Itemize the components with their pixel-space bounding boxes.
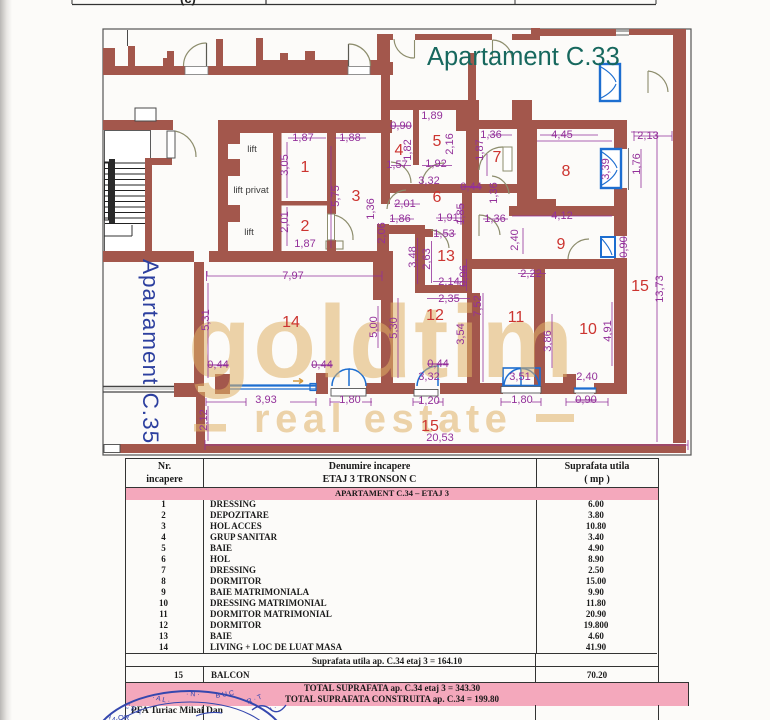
svg-text:5,75: 5,75 [330,185,342,206]
svg-text:3,51: 3,51 [509,371,530,383]
svg-text:5,31: 5,31 [200,309,212,330]
svg-text:1,36: 1,36 [488,182,500,203]
svg-text:1,87: 1,87 [474,139,486,160]
svg-text:3,32: 3,32 [418,175,439,187]
svg-text:13,73: 13,73 [654,275,666,303]
svg-text:5: 5 [433,133,442,150]
svg-text:1,87: 1,87 [294,238,315,250]
svg-text:2,35: 2,35 [438,293,459,305]
svg-text:3,39: 3,39 [600,158,612,179]
svg-text:2,22: 2,22 [520,268,541,280]
svg-text:3,32: 3,32 [418,371,439,383]
svg-text:(c): (c) [180,0,196,6]
svg-text:1,80: 1,80 [511,394,532,406]
svg-text:1: 1 [301,159,310,176]
svg-text:0,90: 0,90 [618,236,630,257]
svg-text:2,01: 2,01 [279,211,291,232]
svg-text:20,53: 20,53 [426,432,454,444]
svg-text:1,82: 1,82 [402,139,414,160]
svg-text:13: 13 [437,248,455,265]
svg-text:2,40: 2,40 [509,229,521,250]
svg-text:1,89: 1,89 [421,110,442,122]
svg-text:0,44: 0,44 [427,358,448,370]
svg-text:3,93: 3,93 [255,394,276,406]
svg-text:0,44: 0,44 [207,359,228,371]
svg-text:0,90: 0,90 [575,394,596,406]
svg-text:lift: lift [247,144,257,155]
svg-text:3,05: 3,05 [279,154,291,175]
svg-text:Apartament C.33: Apartament C.33 [427,43,620,71]
svg-text:14: 14 [282,314,300,331]
svg-text:lift: lift [244,227,254,238]
svg-text:7: 7 [493,149,502,166]
svg-text:lift privat: lift privat [233,185,269,196]
svg-text:2,14: 2,14 [438,276,459,288]
svg-text:8: 8 [562,163,571,180]
svg-text:1,85: 1,85 [455,203,467,224]
svg-text:9,96: 9,96 [458,265,470,286]
svg-text:6: 6 [433,189,442,206]
svg-text:1,20: 1,20 [418,395,439,407]
svg-text:3: 3 [352,188,361,205]
svg-text:2,06: 2,06 [376,222,388,243]
svg-text:0,44: 0,44 [311,359,332,371]
svg-text:Apartament C.35: Apartament C.35 [138,259,163,444]
svg-text:2: 2 [301,218,310,235]
svg-text:11: 11 [508,309,525,326]
svg-text:2,40: 2,40 [576,371,597,383]
svg-text:12: 12 [426,307,444,324]
svg-text:7,52: 7,52 [472,295,484,316]
svg-text:10: 10 [579,321,597,338]
svg-text:2,16: 2,16 [444,133,456,154]
svg-text:15: 15 [631,278,649,295]
svg-text:1,92: 1,92 [425,158,446,170]
svg-text:0,90: 0,90 [390,120,411,132]
svg-text:1,80: 1,80 [339,394,360,406]
svg-text:3,54: 3,54 [455,323,467,344]
svg-text:0,44: 0,44 [460,181,481,193]
svg-text:1,36: 1,36 [365,198,377,219]
svg-text:9: 9 [557,236,566,253]
svg-text:real estate: real estate [254,397,512,441]
